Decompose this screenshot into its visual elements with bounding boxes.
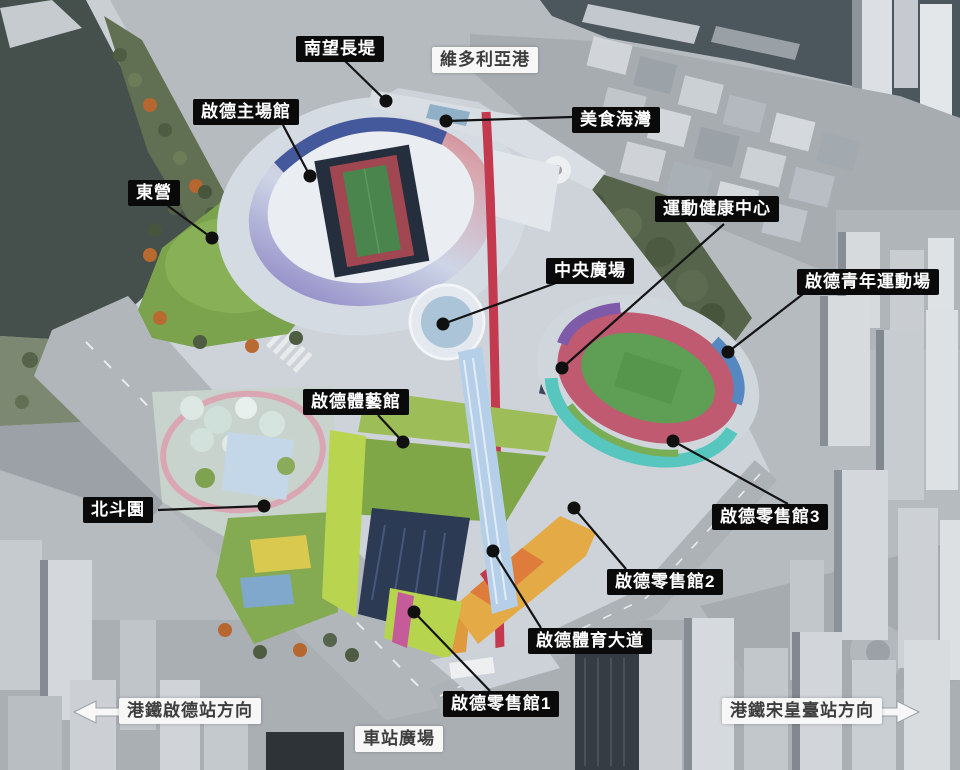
label-dipper-garden: 北斗園 — [83, 497, 153, 523]
label-east-lawn: 東營 — [128, 180, 180, 206]
label-sports-avenue: 啟德體育大道 — [528, 628, 652, 654]
label-arena: 啟德體藝館 — [303, 389, 409, 415]
label-retail-hall-3: 啟德零售館3 — [712, 504, 828, 530]
label-victoria-harbour: 維多利亞港 — [432, 47, 538, 73]
label-main-stadium: 啟德主場館 — [193, 99, 299, 125]
label-layer: 南望長堤維多利亞港啟德主場館美食海灣東營運動健康中心中央廣場啟德青年運動場啟德體… — [0, 0, 960, 770]
label-retail-hall-1: 啟德零售館1 — [443, 691, 559, 717]
sign-mtr-kai-tak-station: 港鐵啟德站方向 — [119, 698, 261, 724]
kai-tak-sports-park-map: 南望長堤維多利亞港啟德主場館美食海灣東營運動健康中心中央廣場啟德青年運動場啟德體… — [0, 0, 960, 770]
label-central-square: 中央廣場 — [546, 258, 634, 284]
label-retail-hall-2: 啟德零售館2 — [607, 569, 723, 595]
label-dining-cove: 美食海灣 — [572, 107, 660, 133]
label-youth-sports-ground: 啟德青年運動場 — [797, 269, 939, 295]
label-station-square: 車站廣場 — [355, 726, 443, 752]
label-health-wellness-centre: 運動健康中心 — [655, 196, 779, 222]
label-south-breakwater: 南望長堤 — [296, 36, 384, 62]
sign-mtr-sung-wong-toi-station: 港鐵宋皇臺站方向 — [722, 698, 882, 724]
